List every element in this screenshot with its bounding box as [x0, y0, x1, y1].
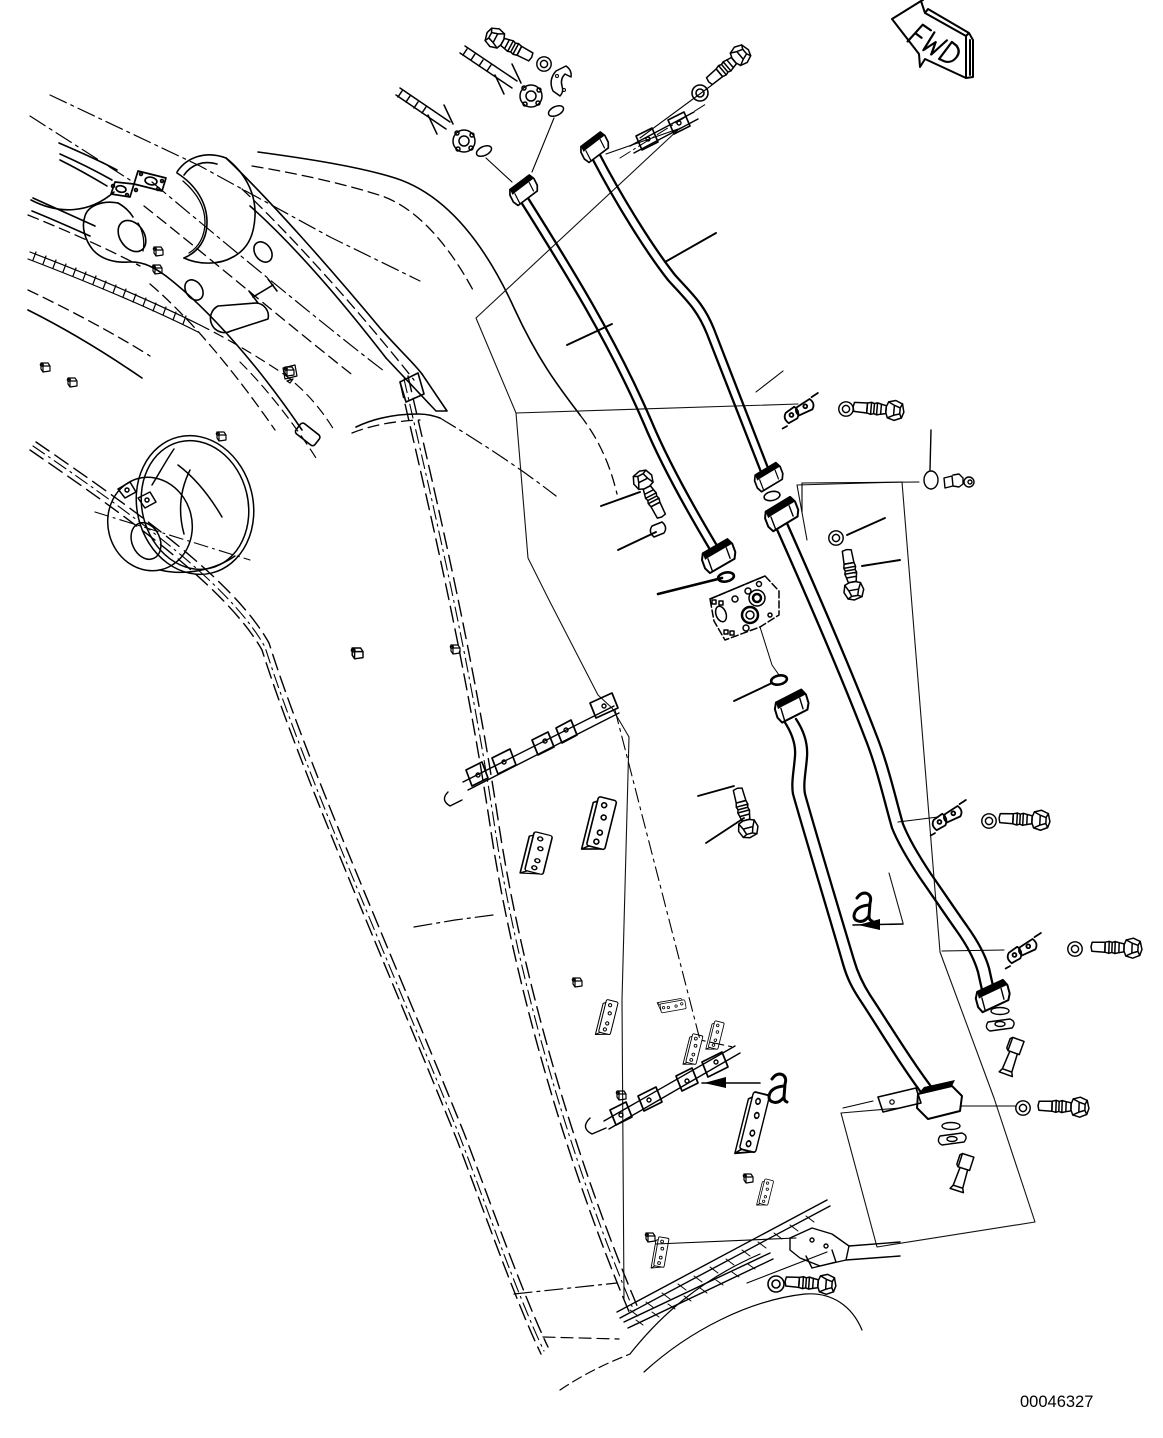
svg-text:00046327: 00046327 [1020, 1393, 1093, 1411]
